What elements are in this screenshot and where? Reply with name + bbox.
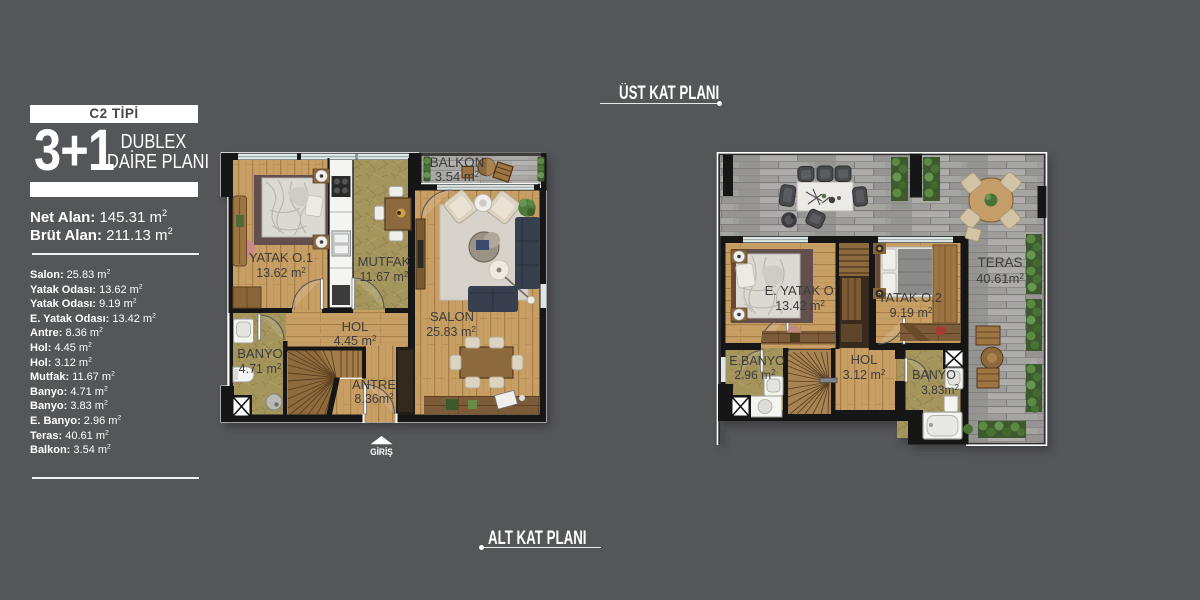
- svg-text:BALKON: BALKON: [430, 155, 485, 170]
- svg-text:ANTRE: ANTRE: [352, 377, 396, 392]
- svg-text:4.71 m2: 4.71 m2: [239, 362, 282, 376]
- svg-text:BANYO: BANYO: [912, 368, 956, 382]
- svg-text:TERAS: TERAS: [977, 255, 1022, 270]
- svg-text:3.83m2: 3.83m2: [921, 383, 959, 397]
- svg-text:13.42 m2: 13.42 m2: [775, 299, 825, 313]
- svg-text:E. YATAK O.: E. YATAK O.: [765, 283, 838, 298]
- svg-text:8.36m2: 8.36m2: [354, 392, 394, 406]
- svg-text:YATAK O.2: YATAK O.2: [878, 290, 942, 305]
- svg-text:E.BANYO: E.BANYO: [729, 354, 785, 368]
- svg-text:SALON: SALON: [430, 309, 474, 324]
- svg-text:BANYO: BANYO: [237, 346, 283, 361]
- svg-text:YATAK O.1: YATAK O.1: [249, 250, 313, 265]
- svg-text:HOL: HOL: [342, 319, 369, 334]
- svg-text:13.62 m2: 13.62 m2: [256, 266, 306, 280]
- svg-text:3.12 m2: 3.12 m2: [843, 368, 886, 382]
- svg-text:GİRİŞ: GİRİŞ: [370, 447, 393, 458]
- svg-text:MUTFAK: MUTFAK: [358, 254, 411, 269]
- svg-text:4.45 m2: 4.45 m2: [334, 334, 377, 348]
- svg-text:3.54 m2: 3.54 m2: [435, 169, 480, 184]
- svg-text:9.19 m2: 9.19 m2: [890, 306, 933, 320]
- svg-text:HOL: HOL: [851, 352, 878, 367]
- svg-text:2.96 m2: 2.96 m2: [734, 368, 776, 382]
- svg-text:11.67 m2: 11.67 m2: [360, 270, 409, 284]
- svg-text:40.61m2: 40.61m2: [976, 271, 1024, 286]
